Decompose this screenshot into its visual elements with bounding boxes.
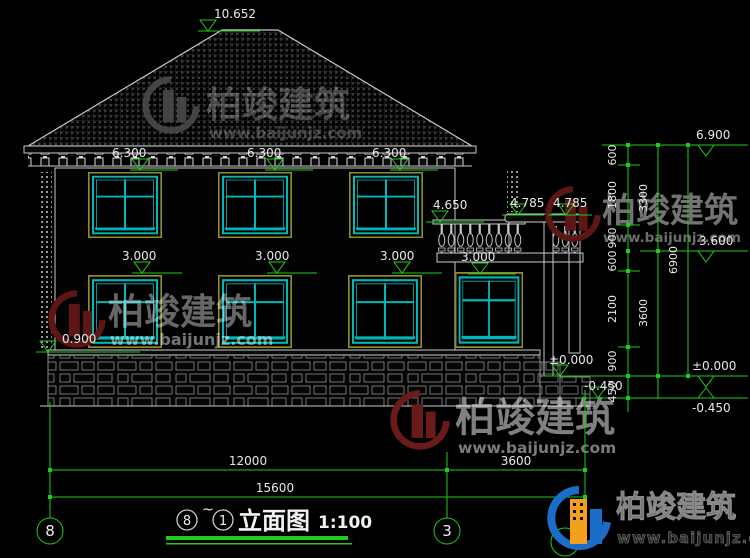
cad-drawing: 柏竣建筑 www.baijunjz.com xyxy=(0,0,750,558)
dim-labels-middle: 3300 3600 xyxy=(637,184,650,327)
svg-text:0.900: 0.900 xyxy=(62,332,96,346)
marker-right-top: 6.900 xyxy=(696,128,730,156)
svg-text:8: 8 xyxy=(45,522,55,540)
svg-text:3.000: 3.000 xyxy=(380,249,414,263)
svg-text:±0.000: ±0.000 xyxy=(549,353,593,367)
svg-text:4.650: 4.650 xyxy=(433,198,467,212)
svg-text:600: 600 xyxy=(606,145,619,166)
brand-logo: 柏竣建筑 www.baijunjz.com xyxy=(551,490,750,547)
drawing-title: 立面图 xyxy=(238,507,310,535)
svg-text:3.000: 3.000 xyxy=(255,249,289,263)
window-annex xyxy=(456,273,523,347)
svg-text:3: 3 xyxy=(442,522,452,540)
window-2f-2 xyxy=(219,173,291,237)
axis-bubble-3: 3 xyxy=(434,518,460,544)
marker-right-annex-roof: 3.600 xyxy=(698,234,733,262)
svg-text:1800: 1800 xyxy=(606,181,619,209)
title-underline-thick xyxy=(166,536,348,540)
svg-text:900: 900 xyxy=(606,351,619,372)
title-axis-end: 1 xyxy=(219,514,227,529)
watermark-name: 柏竣建筑 xyxy=(108,292,252,333)
title-axis-start: 8 xyxy=(183,514,191,529)
svg-text:6.300: 6.300 xyxy=(247,146,281,160)
svg-text:3.000: 3.000 xyxy=(122,249,156,263)
drawing-scale: 1:100 xyxy=(318,513,372,533)
svg-text:3600: 3600 xyxy=(637,299,650,327)
svg-text:6.300: 6.300 xyxy=(372,146,406,160)
window-2f-3 xyxy=(350,173,422,237)
title-separator: ~ xyxy=(202,502,214,518)
dim-span-annex: 3600 xyxy=(501,454,532,468)
svg-text:600: 600 xyxy=(606,251,619,272)
dim-span-total: 15600 xyxy=(256,481,294,495)
svg-text:900: 900 xyxy=(606,228,619,249)
watermark-name: 柏竣建筑 xyxy=(455,395,615,441)
watermark-url: www.baijunjz.com xyxy=(209,124,362,142)
svg-text:-0.450: -0.450 xyxy=(692,401,731,415)
brand-logo-icon xyxy=(551,490,607,546)
svg-text:4.785: 4.785 xyxy=(553,196,587,210)
marker-right-grade: -0.450 xyxy=(692,388,731,415)
svg-text:3300: 3300 xyxy=(637,184,650,212)
elev-value: 10.652 xyxy=(214,7,256,21)
svg-text:±0.000: ±0.000 xyxy=(692,359,736,373)
brand-url: www.baijunjz.com xyxy=(617,529,750,547)
watermark-url: www.baijunjz.com xyxy=(458,439,616,457)
title-underline-thin xyxy=(166,543,352,545)
brand-name: 柏竣建筑 xyxy=(616,490,736,525)
watermark-name: 柏竣建筑 xyxy=(206,85,350,126)
svg-text:4.785: 4.785 xyxy=(510,196,544,210)
title-block: 8 ~ 1 立面图 1:100 xyxy=(166,502,372,545)
building-elevation: 柏竣建筑 www.baijunjz.com xyxy=(24,30,595,406)
svg-text:450: 450 xyxy=(606,382,619,403)
elevation-drawing-canvas: 柏竣建筑 www.baijunjz.com xyxy=(0,0,750,558)
annex-roof-slab xyxy=(437,253,583,262)
dim-span-main: 12000 xyxy=(229,454,267,468)
svg-text:2100: 2100 xyxy=(606,295,619,323)
svg-text:3.000: 3.000 xyxy=(461,250,495,264)
window-2f-1 xyxy=(89,173,161,237)
marker-right-floor: ±0.000 xyxy=(692,359,736,387)
watermark-url: www.baijunjz.com xyxy=(110,330,273,349)
marker-ridge: 10.652 xyxy=(198,7,260,31)
dim-label-total-height: 6900 xyxy=(667,246,680,274)
dim-labels-inner: 600 1800 900 600 2100 900 450 xyxy=(606,145,619,403)
svg-text:6.900: 6.900 xyxy=(696,128,730,142)
axis-bubble-8: 8 xyxy=(37,518,63,544)
window-1f-3 xyxy=(349,276,421,347)
svg-text:3.600: 3.600 xyxy=(699,234,733,248)
svg-text:6.300: 6.300 xyxy=(112,146,146,160)
